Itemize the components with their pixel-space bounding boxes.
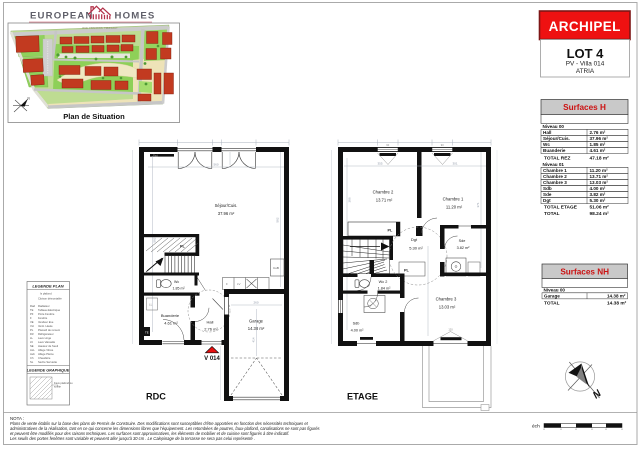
svg-text:LV: LV [30,340,33,344]
svg-text:Surfaces NH: Surfaces NH [560,267,609,276]
svg-text:SE: SE [30,344,34,348]
svg-text:Wc: Wc [543,142,550,147]
svg-text:4.61 m²: 4.61 m² [590,148,606,153]
svg-text:Fenêtre: Fenêtre [38,316,48,320]
svg-text:Chambre 3: Chambre 3 [436,297,457,302]
svg-text:Porte Fenêtre: Porte Fenêtre [38,312,55,316]
svg-text:FR: FR [30,332,34,336]
svg-text:Sde: Sde [459,239,466,243]
svg-text:37.96 m²: 37.96 m² [218,211,235,216]
svg-text:Surfaces H: Surfaces H [563,103,606,112]
svg-text:Rad: Rad [153,153,158,157]
svg-text:Tableau Electrique: Tableau Electrique [38,308,61,312]
svg-text:90: 90 [386,143,389,147]
svg-text:11.20 m²: 11.20 m² [590,168,609,173]
svg-text:Aub: Aub [30,352,35,356]
svg-text:Allège Vitrée: Allège Vitrée [38,348,54,352]
svg-text:RDC: RDC [146,392,166,402]
svg-text:Is plafond: Is plafond [40,292,52,296]
svg-text:HOMES: HOMES [115,11,156,22]
svg-text:386: 386 [347,197,351,202]
svg-text:Les seuils des portes fenêtres: Les seuils des portes fenêtres sont vari… [10,436,255,441]
svg-text:CuB: CuB [273,266,279,270]
svg-text:Niveau 00: Niveau 00 [544,288,566,293]
svg-text:TOTAL: TOTAL [544,301,560,307]
svg-text:4.00 m²: 4.00 m² [351,329,365,333]
svg-text:582: 582 [152,237,156,242]
svg-text:Placard de rement: Placard de rement [38,328,60,332]
svg-text:582: 582 [276,217,280,222]
svg-text:Chambre 1: Chambre 1 [543,168,567,173]
svg-text:371: 371 [476,202,480,207]
svg-text:5.30 m²: 5.30 m² [590,198,606,203]
svg-text:TE: TE [145,331,149,335]
svg-text:Chambre 3: Chambre 3 [543,180,567,185]
svg-text:VE: VE [30,320,34,324]
svg-text:120: 120 [448,328,453,332]
svg-text:ATRIA: ATRIA [576,68,595,75]
svg-text:PV - Villa 014: PV - Villa 014 [566,61,605,68]
svg-text:LL: LL [30,336,33,340]
svg-text:Hauteur de Seuil: Hauteur de Seuil [38,344,58,348]
svg-text:Garage: Garage [544,294,560,299]
svg-text:Cloison démontable: Cloison démontable [38,297,62,301]
svg-text:Ch: Ch [30,356,34,360]
svg-text:Chambre 2: Chambre 2 [373,190,394,195]
svg-text:PF: PF [30,312,34,316]
svg-text:soffite: soffite [54,385,61,389]
svg-text:LEGENDE GRAPHIQUE: LEGENDE GRAPHIQUE [27,369,70,373]
svg-text:560: 560 [213,162,218,166]
svg-text:éch: éch [532,424,540,430]
svg-text:1.85 m²: 1.85 m² [590,142,606,147]
svg-text:SL: SL [30,360,34,364]
svg-text:VH: VH [30,324,34,328]
svg-text:Wc 2: Wc 2 [379,280,388,284]
svg-text:3.82 m²: 3.82 m² [590,192,606,197]
svg-text:11.20 m²: 11.20 m² [446,205,463,210]
svg-text:Niveau 00: Niveau 00 [543,124,565,129]
svg-text:PL: PL [388,229,394,233]
svg-text:301: 301 [452,161,457,165]
svg-text:14.38 m²: 14.38 m² [607,294,626,299]
svg-text:Allège Pleine: Allège Pleine [38,352,54,356]
svg-text:Faux plafond ou: Faux plafond ou [54,381,73,385]
svg-text:TOTAL ETAGE: TOTAL ETAGE [544,205,578,211]
svg-text:5.30 m²: 5.30 m² [409,246,423,251]
svg-text:F: F [226,282,228,286]
svg-text:ALL: ALL [30,348,35,352]
svg-text:Rad: Rad [30,304,35,308]
svg-text:13.03 m²: 13.03 m² [590,180,609,185]
svg-text:Vendeur Eve: Vendeur Eve [38,320,54,324]
svg-text:355: 355 [377,161,382,165]
svg-text:Buanderie: Buanderie [161,313,180,318]
svg-text:V 014: V 014 [204,356,220,362]
svg-text:47.18 m²: 47.18 m² [590,156,610,162]
svg-text:Dgt: Dgt [411,237,418,242]
svg-text:Sdb: Sdb [353,322,360,326]
svg-text:LL: LL [149,303,153,307]
svg-text:Lave Vaisselle: Lave Vaisselle [38,340,56,344]
svg-text:TOTAL REZ: TOTAL REZ [544,156,570,162]
svg-text:Séjour/Cuis.: Séjour/Cuis. [543,136,570,141]
svg-text:13.71 m²: 13.71 m² [376,198,393,203]
svg-text:Dgt: Dgt [543,198,551,203]
svg-text:LV: LV [237,282,240,286]
svg-text:PL: PL [30,328,34,332]
svg-text:TE: TE [30,308,34,312]
svg-text:Lave Linge: Lave Linge [38,336,52,340]
svg-text:Venti. Haute: Venti. Haute [38,324,53,328]
svg-text:Niveau 01: Niveau 01 [543,162,565,167]
svg-text:Chambre 2: Chambre 2 [543,174,567,179]
svg-text:2.76 m²: 2.76 m² [590,130,606,135]
svg-text:4.00 m²: 4.00 m² [590,186,606,191]
svg-text:414: 414 [252,337,256,342]
svg-text:3.82 m²: 3.82 m² [457,246,471,250]
svg-text:LOT 4: LOT 4 [567,46,605,61]
svg-text:98.24 m²: 98.24 m² [590,211,610,217]
svg-text:PL: PL [404,269,410,273]
svg-text:Plan de Situation: Plan de Situation [63,112,125,121]
svg-text:LEGENDE PLAN: LEGENDE PLAN [32,284,63,289]
svg-text:260: 260 [253,301,258,305]
svg-text:Wc: Wc [174,280,179,284]
svg-text:TOTAL: TOTAL [544,211,560,217]
svg-text:ETAGE: ETAGE [347,392,378,402]
svg-text:RUE FRANCOIS TRUFFAUT: RUE FRANCOIS TRUFFAUT [82,26,118,30]
svg-text:13.71 m²: 13.71 m² [590,174,609,179]
svg-text:ARCHIPEL: ARCHIPEL [549,19,621,34]
svg-text:Seche Serviette: Seche Serviette [38,360,57,364]
svg-text:14.38 m²: 14.38 m² [607,301,627,307]
svg-text:1.84 m²: 1.84 m² [378,287,392,291]
svg-text:Sdb: Sdb [543,186,552,191]
svg-text:EUROPEAN: EUROPEAN [30,11,94,22]
svg-text:51.06 m²: 51.06 m² [590,205,610,211]
svg-text:Hall: Hall [207,320,214,325]
svg-text:PL: PL [180,245,186,249]
svg-text:Chambre 1: Chambre 1 [443,197,464,202]
svg-text:90: 90 [441,143,444,147]
svg-text:Buanderie: Buanderie [543,148,566,153]
svg-text:Sde: Sde [543,192,552,197]
svg-text:2.76 m²: 2.76 m² [204,327,218,332]
svg-text:13.03 m²: 13.03 m² [439,305,456,310]
svg-text:Radiateur: Radiateur [38,304,50,308]
svg-text:37.96 m²: 37.96 m² [590,136,609,141]
svg-text:Séjour/Cuis.: Séjour/Cuis. [215,203,238,208]
svg-text:1.85 m²: 1.85 m² [173,287,186,291]
svg-text:Réfrigérateur: Réfrigérateur [38,332,54,336]
svg-text:Hall: Hall [543,130,551,135]
svg-text:Chaudière: Chaudière [38,356,51,360]
